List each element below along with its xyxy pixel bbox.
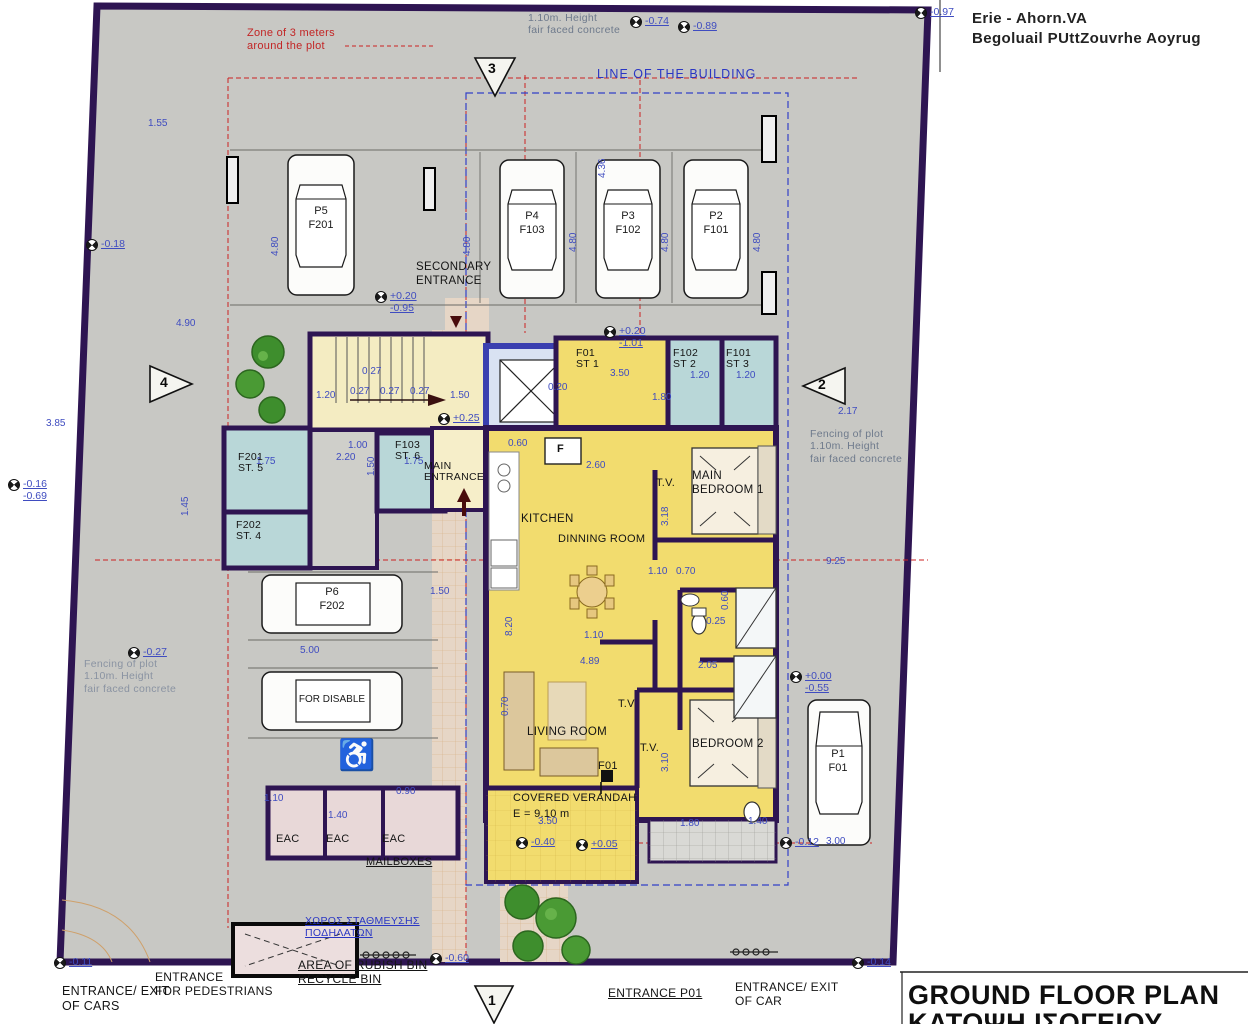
site-plan-drawing: [0, 0, 1248, 1024]
fridge-icon: [545, 438, 581, 464]
ground-floor-plan-sheet: 1.554.364.903.854.804.804.804.804.801.20…: [0, 0, 1248, 1024]
car-p4: [500, 160, 564, 298]
car-p5: [288, 155, 354, 295]
living-room-furniture: [504, 672, 598, 776]
car-p1: [808, 700, 870, 845]
toilet-icon: [744, 802, 760, 822]
car-p2: [684, 160, 748, 298]
toilet-icon: [692, 614, 706, 634]
washbasin-icon: [681, 594, 699, 606]
car-disabled: [262, 672, 402, 730]
f01-flag-icon: [601, 770, 613, 782]
storage-rooms-top: [556, 338, 776, 430]
staircase: [310, 334, 488, 430]
rubbish-bin-area: [233, 924, 357, 976]
car-p3: [596, 160, 660, 298]
eac-rooms: [268, 788, 458, 858]
car-p6: [262, 575, 402, 633]
title-block-frame: [900, 0, 1248, 1024]
